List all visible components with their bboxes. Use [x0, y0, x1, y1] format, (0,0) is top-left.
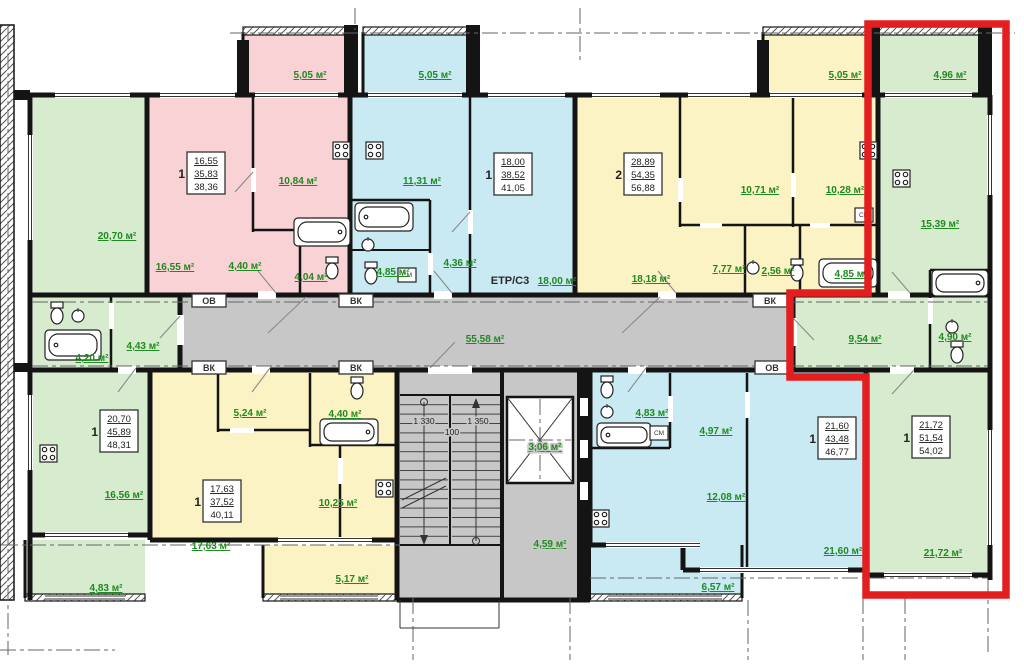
room-fills [25, 35, 990, 598]
bathtub-icon [355, 203, 413, 231]
area-left-green-bath: 4,20 м² [76, 353, 110, 364]
svg-text:1: 1 [903, 431, 910, 445]
svg-text:1: 1 [178, 167, 185, 181]
area-pink-living: 16,55 м² [156, 262, 195, 273]
area-top-yellow-bedroom: 10,71 м² [741, 185, 780, 196]
toilet-icon [951, 341, 963, 363]
riser-label-vk: ВК [764, 296, 776, 306]
toilet-icon [51, 302, 63, 324]
bathtub-icon [320, 419, 378, 445]
stove-icon [592, 510, 609, 527]
riser-label-vk: ВК [350, 363, 362, 373]
svg-text:48,31: 48,31 [107, 440, 131, 451]
staircase: 1 330 1 350 100 [400, 395, 500, 545]
svg-text:43,48: 43,48 [825, 434, 849, 445]
floor-plan-canvas: 1 330 1 350 100 3,06 м² ОВ ВК ВК ВК ВК О… [0, 0, 1024, 665]
area-right-green-bath: 4,90 м² [939, 332, 973, 343]
svg-text:16,55: 16,55 [194, 156, 218, 167]
svg-text:2: 2 [615, 168, 622, 182]
svg-text:17,63: 17,63 [210, 484, 234, 495]
svg-text:38,36: 38,36 [194, 182, 218, 193]
area-top-yellow-living: 18,18 м² [632, 274, 671, 285]
area-top-yellow-hall: 7,77 м² [713, 264, 747, 275]
riser-label-ov: ОВ [765, 363, 779, 373]
area-bottom-blue-balcony: 6,57 м² [702, 582, 736, 593]
area-bottom-yellow-bath: 4,40 м² [329, 409, 363, 420]
svg-text:21,72: 21,72 [919, 420, 943, 431]
area-pink-wc: 4,04 м² [295, 272, 329, 283]
area-top-yellow-balcony: 5,05 м² [829, 70, 863, 81]
room-right-green-kitchen [878, 97, 990, 297]
room-left-green-living [33, 97, 147, 295]
area-left-green-hall: 4,43 м² [127, 341, 161, 352]
svg-text:21,60: 21,60 [825, 421, 849, 432]
area-left-green-balcony: 4,83 м² [90, 583, 124, 594]
balcony-pink [243, 35, 350, 95]
svg-text:1: 1 [485, 168, 492, 182]
svg-text:54,35: 54,35 [631, 170, 655, 181]
bathtub-icon [597, 423, 651, 447]
svg-text:1: 1 [194, 495, 201, 509]
area-left-green-living: 20,70 м² [98, 231, 137, 242]
svg-text:41,05: 41,05 [501, 183, 525, 194]
area-bottom-yellow-balcony: 5,17 м² [336, 574, 370, 585]
toilet-icon [351, 377, 363, 399]
riser-label-vk: ВК [350, 296, 362, 306]
area-top-blue-hall: 4,36 м² [444, 258, 478, 269]
svg-text:38,52: 38,52 [501, 170, 525, 181]
stove-icon [366, 142, 383, 159]
area-pink-kitchen: 10,84 м² [279, 176, 318, 187]
stair-dim-left: 1 330 [413, 416, 435, 426]
svg-text:1: 1 [91, 425, 98, 439]
bathtub-icon [294, 218, 350, 246]
svg-text:45,89: 45,89 [107, 427, 131, 438]
toilet-icon [601, 376, 613, 398]
toilet-icon [365, 262, 377, 284]
riser-label-vk: ВК [203, 363, 215, 373]
area-bottom-blue-living: 21,60 м² [824, 546, 863, 557]
room-right-green-living [868, 372, 990, 575]
svg-text:1: 1 [809, 432, 816, 446]
area-pink-hall: 4,40 м² [229, 261, 263, 272]
area-bottom-yellow-hall: 5,24 м² [234, 408, 268, 419]
area-top-blue-balcony: 5,05 м² [419, 70, 453, 81]
stove-icon [376, 480, 393, 497]
area-pink-balcony: 5,05 м² [294, 70, 328, 81]
stove-icon [333, 142, 350, 159]
stove-icon [40, 445, 57, 462]
area-bottom-blue-bath: 4,83 м² [636, 408, 670, 419]
svg-text:54,02: 54,02 [919, 446, 943, 457]
floor-plan-drawing: 1 330 1 350 100 3,06 м² ОВ ВК ВК ВК ВК О… [0, 0, 1024, 665]
balcony-right-green [877, 35, 985, 95]
area-top-blue-bath: 4,85 м² [377, 267, 411, 278]
area-top-blue-living: 18,00 м² [538, 276, 577, 287]
balcony-bottom-yellow [263, 545, 397, 598]
area-top-yellow-bath: 4,85 м² [835, 269, 869, 280]
svg-text:35,83: 35,83 [194, 169, 218, 180]
elevator-shaft: 3,06 м² [507, 397, 573, 483]
etr-label: ЕТР/С3 [491, 275, 530, 287]
stove-icon [893, 170, 910, 187]
area-bottom-yellow-kitchen: 10,25 м² [319, 498, 358, 509]
area-right-green-kitchen: 15,39 м² [921, 219, 960, 230]
balcony-top-yellow [763, 35, 872, 95]
area-bottom-yellow-living: 17,63 м² [192, 541, 231, 552]
svg-text:46,77: 46,77 [825, 447, 849, 458]
toilet-icon [326, 257, 338, 279]
stair-dim-right: 1 350 [467, 416, 489, 426]
svg-text:СМ: СМ [654, 430, 664, 437]
elevator-area-label: 3,06 м² [529, 442, 563, 453]
area-bottom-blue-kitchen: 12,08 м² [707, 492, 746, 503]
svg-text:18,00: 18,00 [501, 157, 525, 168]
stair-dim-mid: 100 [445, 427, 459, 437]
area-vestibule: 4,59 м² [534, 539, 568, 550]
area-right-green-balcony: 4,96 м² [934, 70, 968, 81]
svg-text:37,52: 37,52 [210, 497, 234, 508]
area-right-green-hall: 9,54 м² [849, 334, 883, 345]
svg-text:51,54: 51,54 [919, 433, 943, 444]
riser-label-ov: ОВ [202, 296, 216, 306]
balcony-top-blue [363, 35, 478, 95]
room-left-green-balcony [25, 540, 145, 598]
washing-machine-icon: СМ [650, 426, 668, 440]
area-right-green-living: 21,72 м² [924, 548, 963, 559]
area-corridor: 55,58 м² [466, 334, 505, 345]
area-top-yellow-wc: 2,56 м² [762, 266, 796, 277]
area-top-blue-kitchen: 11,31 м² [403, 176, 442, 187]
svg-text:28,89: 28,89 [631, 157, 655, 168]
area-bottom-blue-hall: 4,97 м² [700, 426, 734, 437]
svg-text:56,88: 56,88 [631, 183, 655, 194]
svg-text:20,70: 20,70 [107, 414, 131, 425]
bathtub-icon [932, 270, 988, 296]
svg-text:40,11: 40,11 [210, 510, 233, 521]
area-top-yellow-kitchen: 10,28 м² [826, 185, 865, 196]
area-left-green-kitchen: 16,56 м² [105, 490, 144, 501]
